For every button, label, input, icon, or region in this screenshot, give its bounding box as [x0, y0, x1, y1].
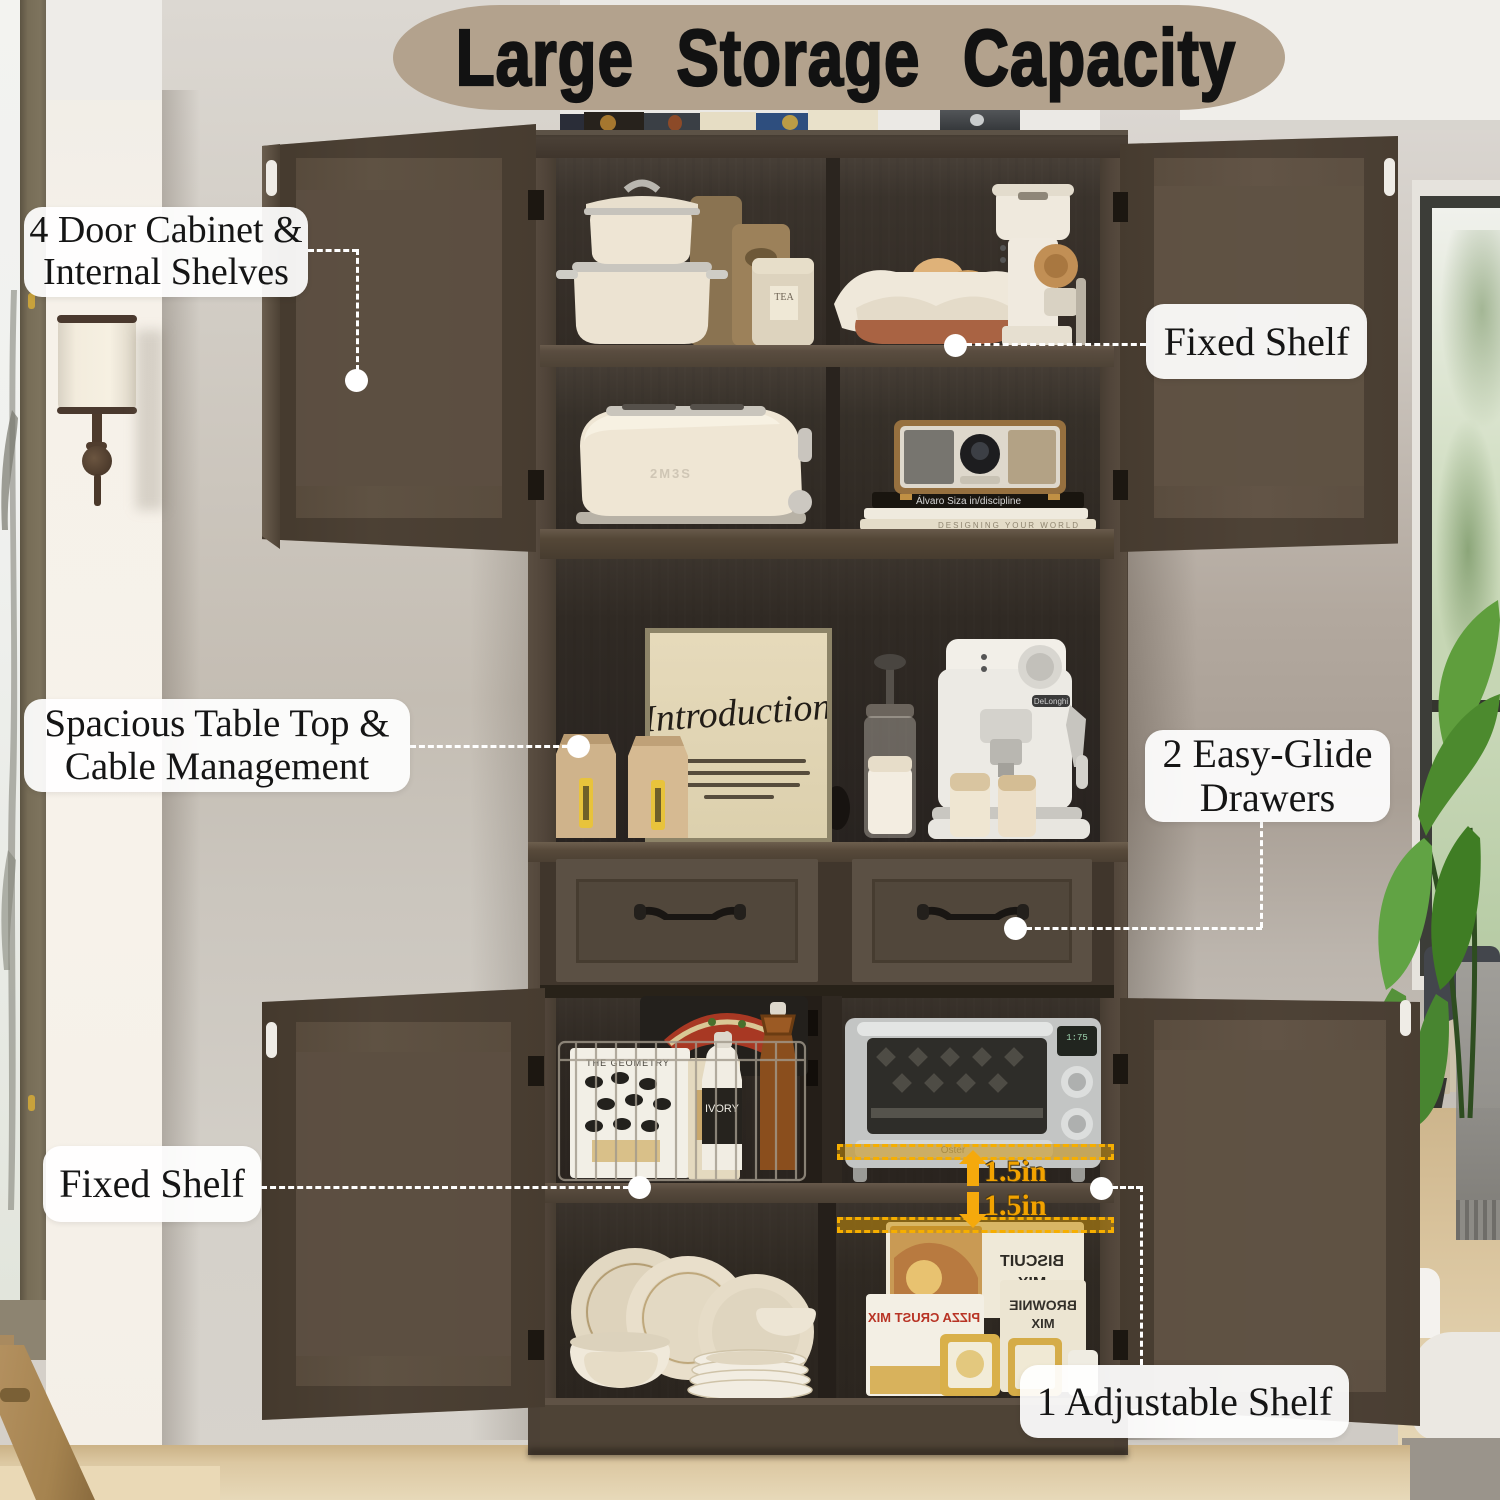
svg-text:MIX: MIX [1031, 1316, 1054, 1331]
svg-text:TEA: TEA [774, 292, 794, 303]
svg-text:Álvaro Siza in/discipline: Álvaro Siza in/discipline [916, 494, 1021, 507]
svg-text:DeLonghi: DeLonghi [1034, 697, 1068, 706]
svg-text:BISCUIT: BISCUIT [1000, 1253, 1064, 1270]
svg-text:BROWNIE: BROWNIE [1009, 1297, 1077, 1313]
svg-text:1:75: 1:75 [1066, 1033, 1088, 1043]
svg-text:PIZZA CRUST MIX: PIZZA CRUST MIX [868, 1310, 981, 1325]
svg-text:2M3S: 2M3S [650, 466, 692, 481]
